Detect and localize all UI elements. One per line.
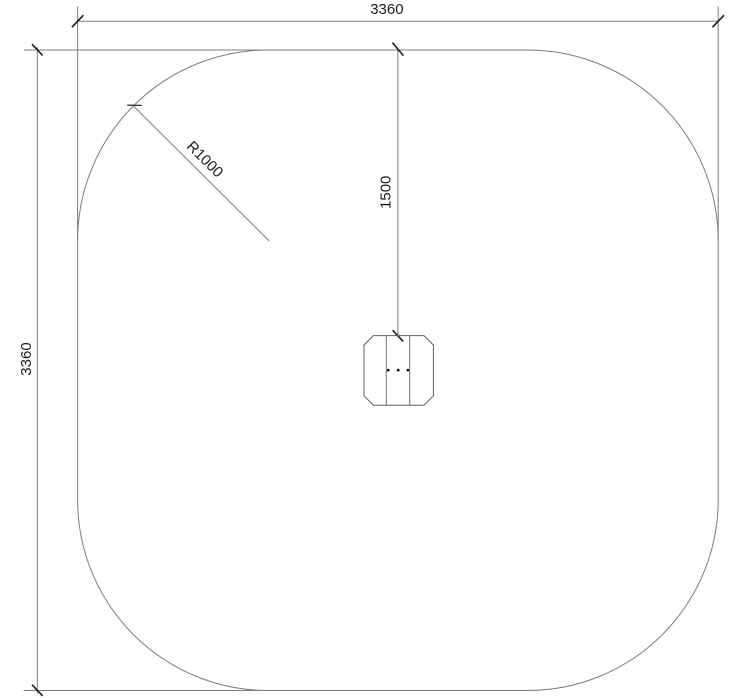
svg-text:3360: 3360 [370,1,403,18]
svg-text:1500: 1500 [378,176,395,209]
svg-text:3360: 3360 [18,342,35,375]
